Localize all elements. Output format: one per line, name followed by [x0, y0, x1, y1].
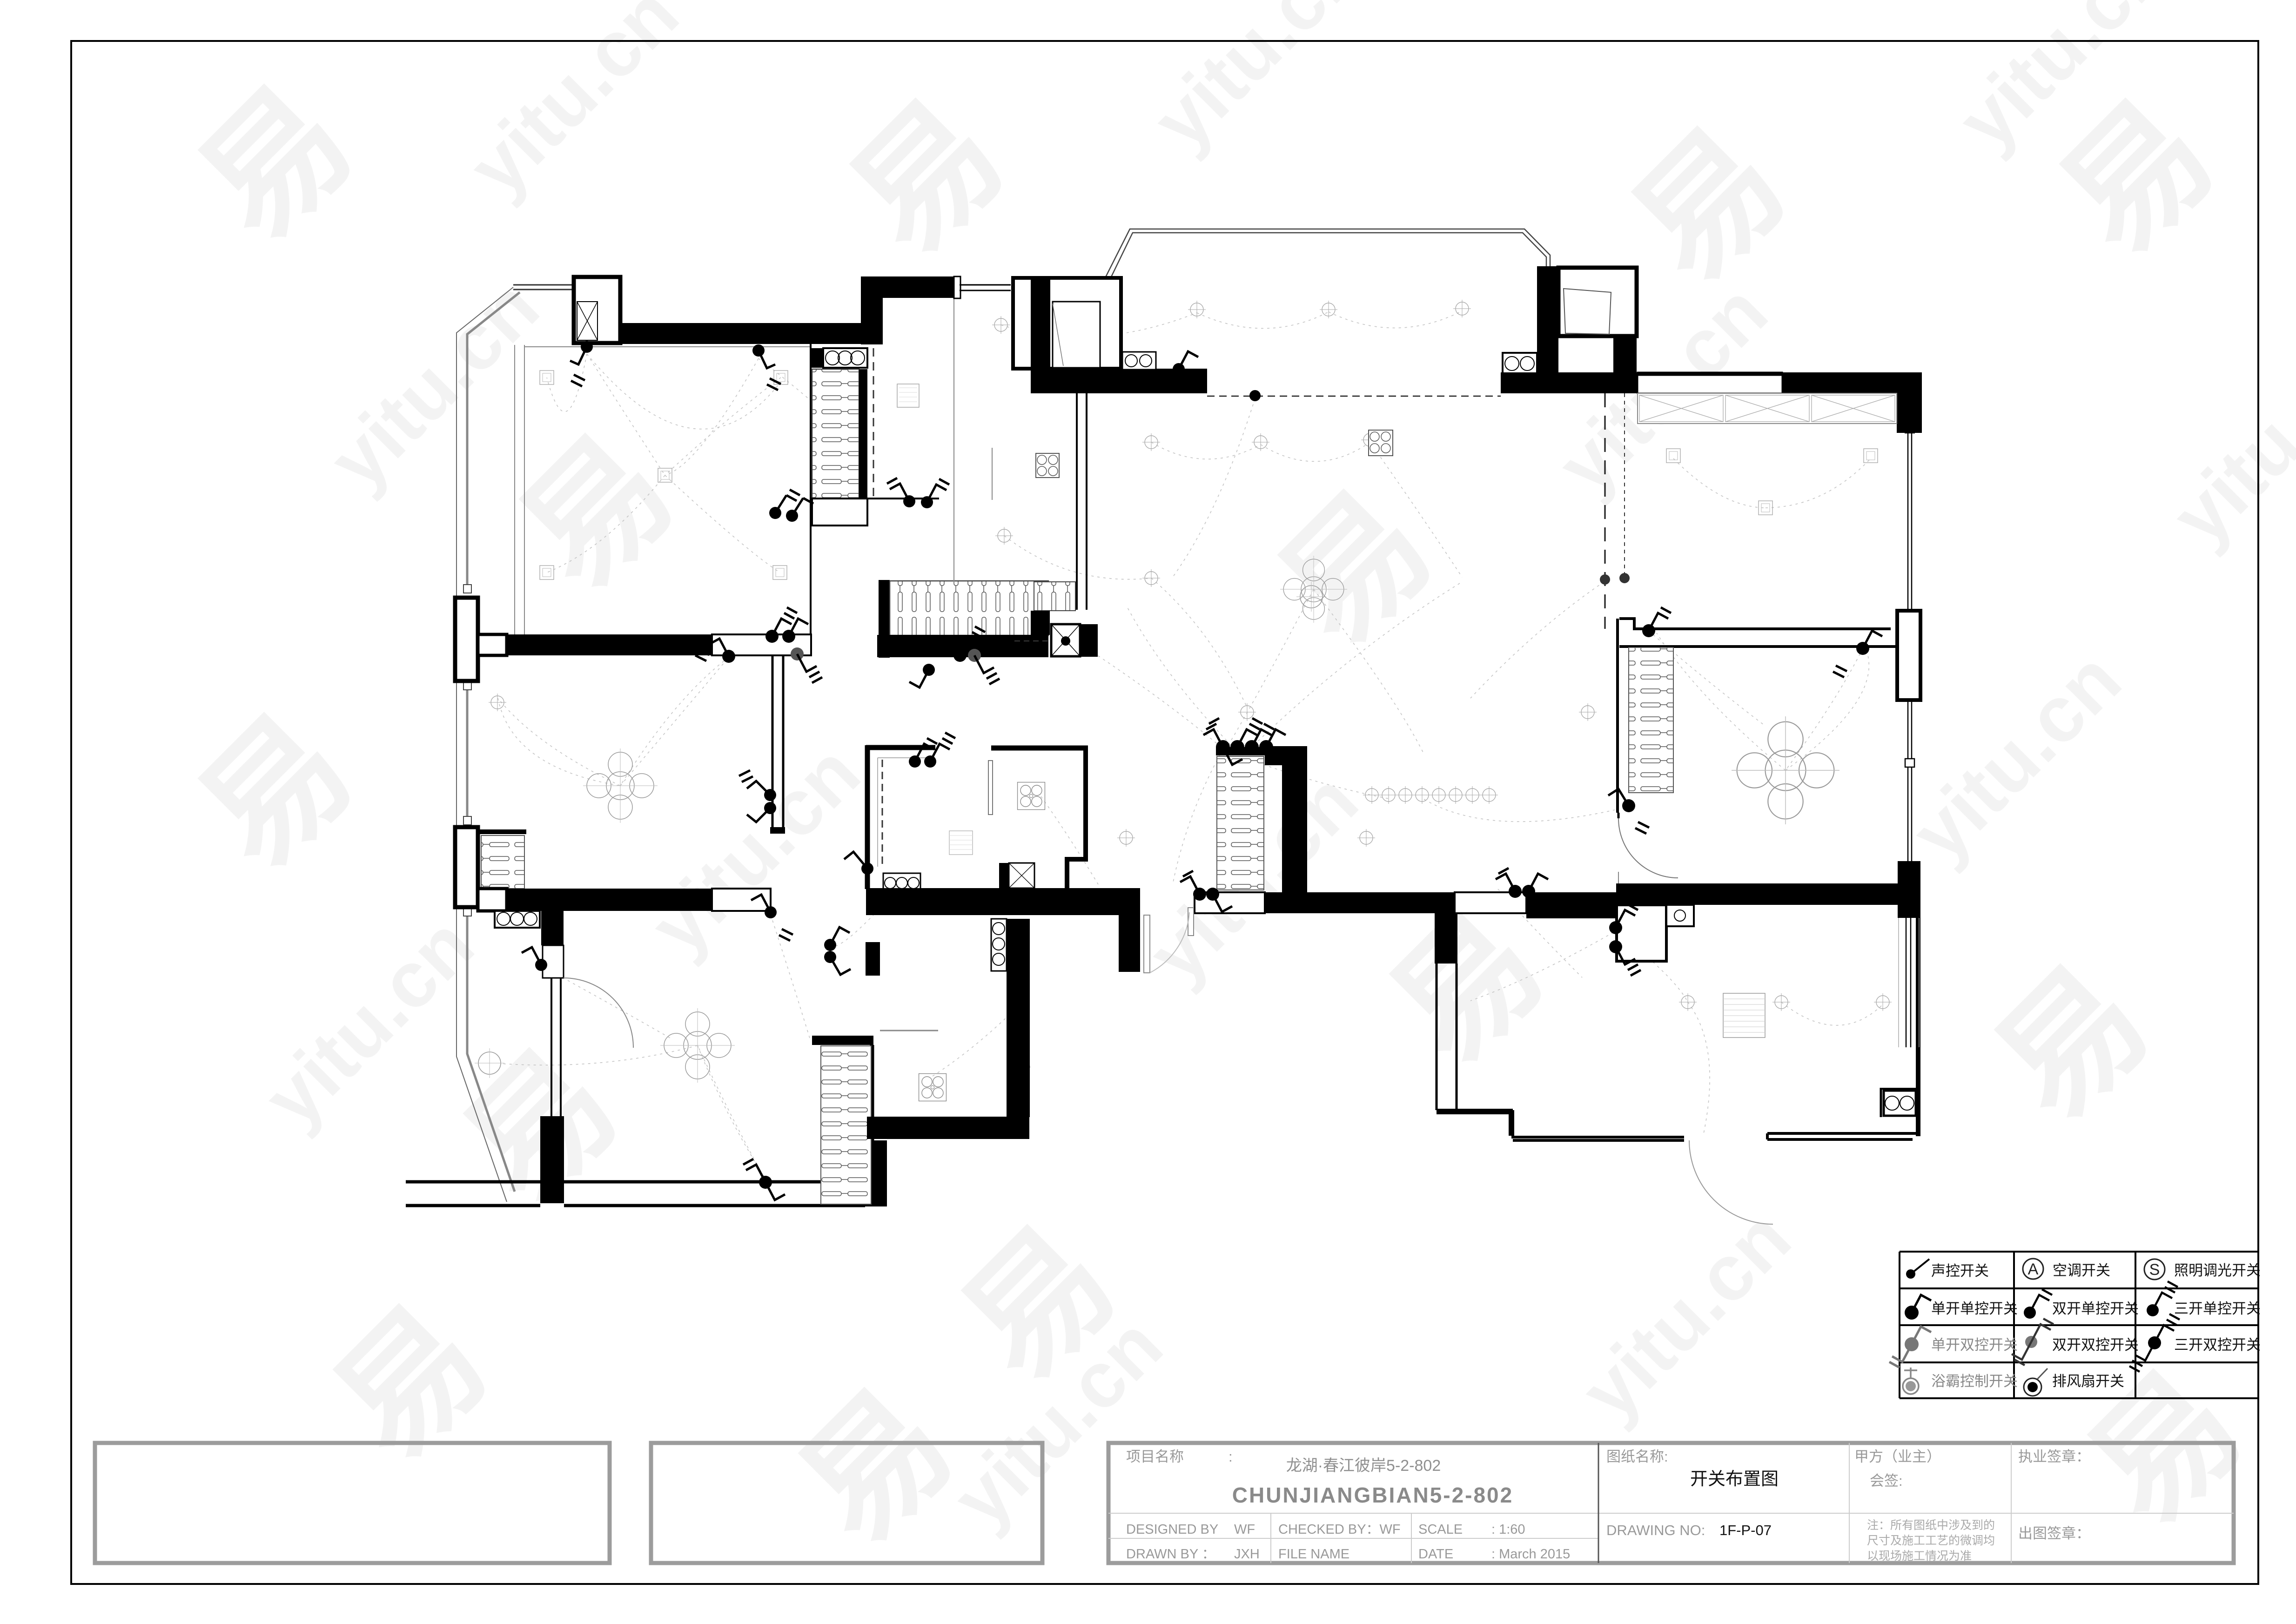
- svg-text:三开双控开关: 三开双控开关: [2174, 1337, 2261, 1353]
- svg-text:CHUNJIANGBIAN5-2-802: CHUNJIANGBIAN5-2-802: [1232, 1483, 1513, 1507]
- svg-text:双开单控开关: 双开单控开关: [2052, 1301, 2139, 1317]
- svg-text:WF: WF: [1234, 1522, 1255, 1537]
- svg-text::: :: [1229, 1449, 1233, 1465]
- svg-text:CHECKED BY：WF: CHECKED BY：WF: [1278, 1522, 1401, 1537]
- svg-text:声控开关: 声控开关: [1931, 1263, 1989, 1279]
- svg-text:开关布置图: 开关布置图: [1690, 1469, 1779, 1489]
- svg-text:DRAWN BY ：: DRAWN BY ：: [1126, 1547, 1215, 1562]
- svg-text:1F-P-07: 1F-P-07: [1719, 1522, 1772, 1538]
- svg-text:会签:: 会签:: [1870, 1473, 1903, 1489]
- svg-text:JXH: JXH: [1234, 1547, 1260, 1562]
- svg-text:: March 2015: : March 2015: [1491, 1547, 1570, 1562]
- svg-text:S: S: [2149, 1261, 2160, 1279]
- svg-text:排风扇开关: 排风扇开关: [2052, 1373, 2124, 1389]
- svg-text:DATE: DATE: [1418, 1547, 1453, 1562]
- svg-text:FILE NAME: FILE NAME: [1278, 1547, 1349, 1562]
- svg-text:龙湖·春江彼岸5-2-802: 龙湖·春江彼岸5-2-802: [1286, 1457, 1441, 1475]
- svg-text:图纸名称:: 图纸名称:: [1606, 1449, 1668, 1465]
- svg-text:A: A: [2028, 1260, 2039, 1278]
- svg-text:双开双控开关: 双开双控开关: [2052, 1337, 2139, 1353]
- svg-text:浴霸控制开关: 浴霸控制开关: [1931, 1373, 2018, 1389]
- svg-text:三开单控开关: 三开单控开关: [2174, 1301, 2261, 1317]
- svg-text:出图签章：: 出图签章：: [2018, 1525, 2090, 1542]
- svg-text:单开双控开关: 单开双控开关: [1931, 1337, 2018, 1353]
- svg-text:项目名称: 项目名称: [1126, 1449, 1184, 1465]
- svg-text:注：所有图纸中涉及到的: 注：所有图纸中涉及到的: [1867, 1519, 1995, 1532]
- svg-text:SCALE: SCALE: [1418, 1522, 1463, 1537]
- svg-text:单开单控开关: 单开单控开关: [1931, 1301, 2018, 1317]
- svg-text:执业签章：: 执业签章：: [2018, 1449, 2090, 1465]
- svg-text:DESIGNED BY: DESIGNED BY: [1126, 1522, 1218, 1537]
- svg-text:甲方（业主）: 甲方（业主）: [1854, 1449, 1941, 1465]
- svg-text:: 1:60: : 1:60: [1491, 1522, 1525, 1537]
- svg-text:空调开关: 空调开关: [2053, 1262, 2110, 1279]
- svg-text:照明调光开关: 照明调光开关: [2174, 1262, 2261, 1279]
- svg-text:尺寸及施工工艺的微调均: 尺寸及施工工艺的微调均: [1867, 1534, 1995, 1547]
- svg-text:DRAWING NO:: DRAWING NO:: [1606, 1522, 1705, 1538]
- svg-text:以现场施工情况为准: 以现场施工情况为准: [1867, 1550, 1972, 1563]
